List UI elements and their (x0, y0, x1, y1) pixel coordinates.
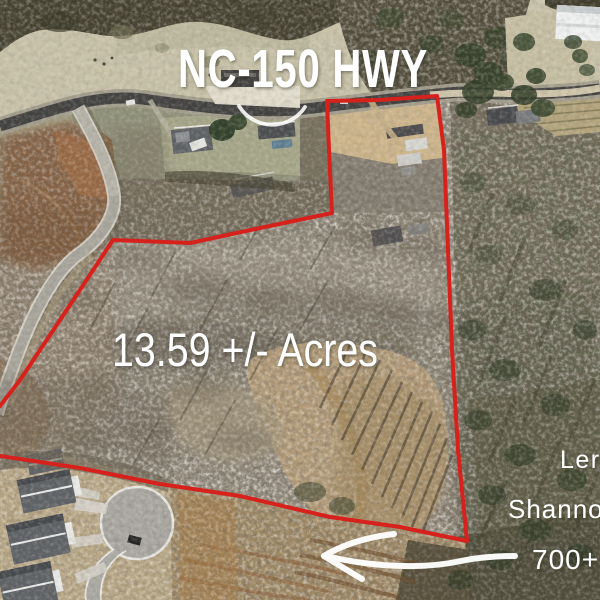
svg-text:NC-150 HWY: NC-150 HWY (178, 39, 428, 99)
svg-text:700+: 700+ (532, 544, 599, 575)
svg-text:Leroy: Leroy (560, 446, 600, 474)
svg-text:Shannon: Shannon (508, 494, 600, 524)
svg-text:13.59 +/- Acres: 13.59 +/- Acres (112, 323, 378, 376)
